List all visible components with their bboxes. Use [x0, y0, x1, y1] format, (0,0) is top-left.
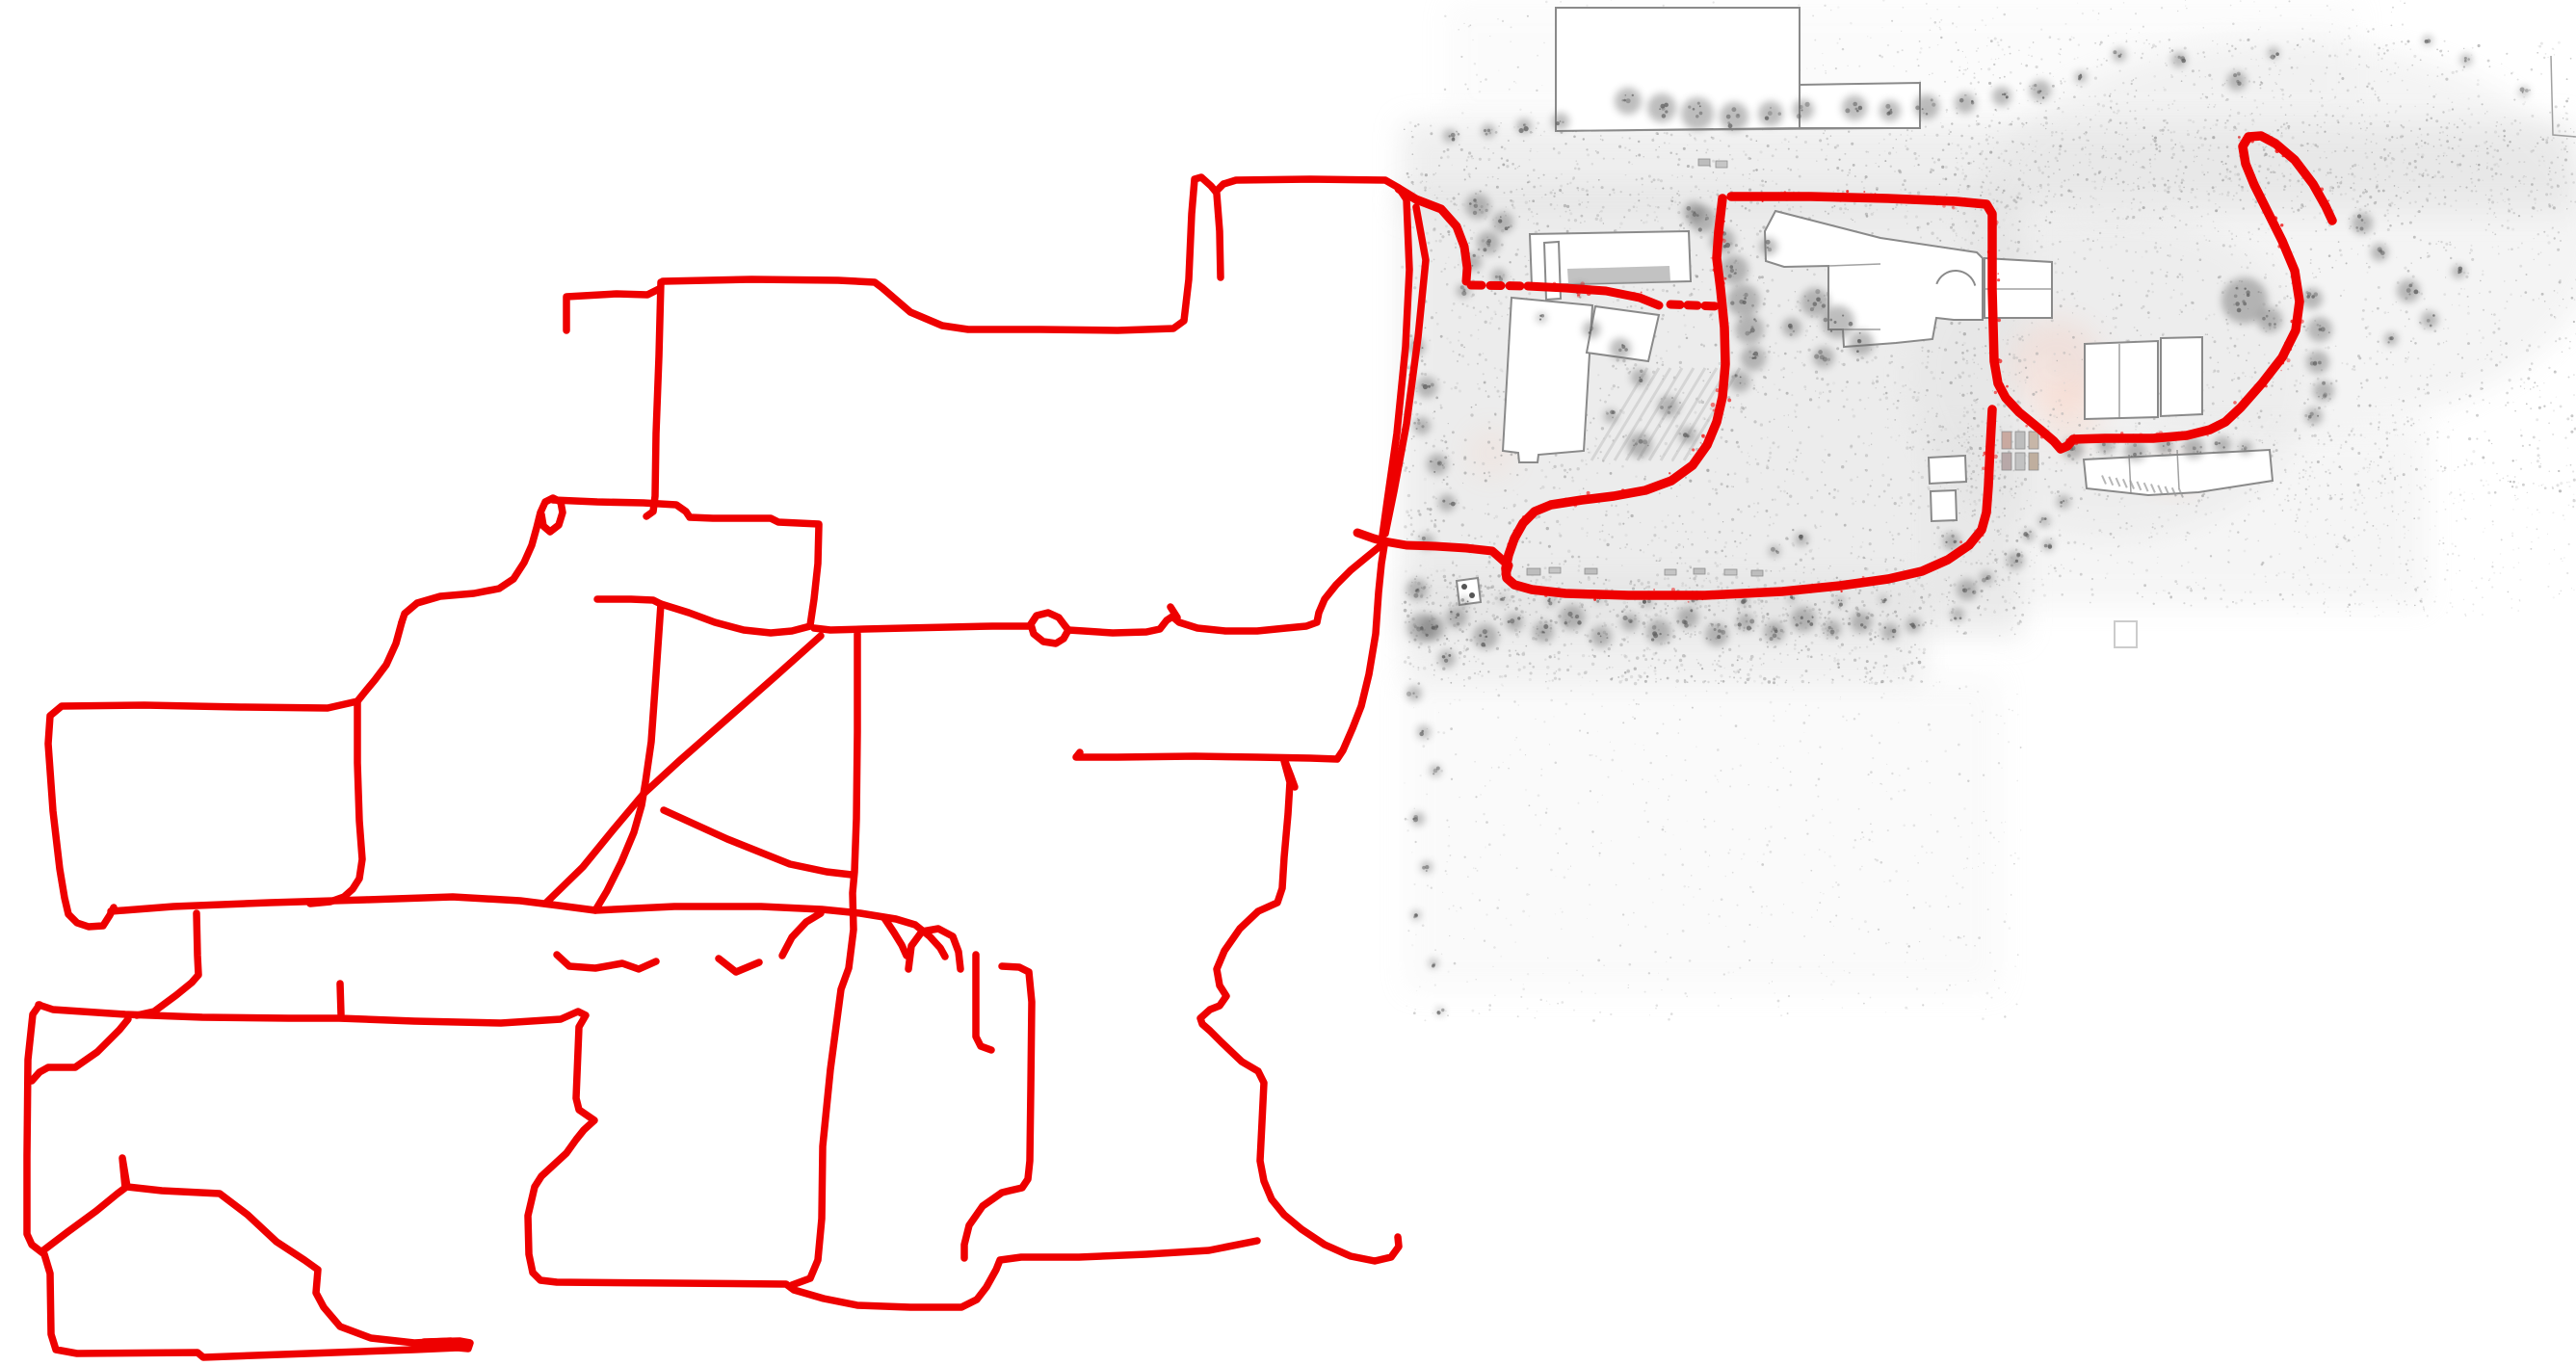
trajectory-stroke-scallop-1 [557, 955, 656, 969]
building-outline-lower-left-hall [1503, 298, 1592, 462]
tree-blob [1683, 201, 1704, 223]
tree-blob [1992, 87, 2011, 106]
trajectory-stroke-stub-top-left [566, 289, 659, 330]
tree-blob [1482, 124, 1495, 138]
kiosk-dot [1461, 584, 1467, 590]
tree-blob [1793, 99, 1814, 120]
trajectory-stroke-mid-vert-373 [310, 701, 362, 904]
tree-blob [1705, 623, 1728, 646]
tree-blob [1417, 725, 1431, 739]
tree-blob [2423, 36, 2432, 45]
parked-car [1527, 568, 1540, 575]
tree-blob [1583, 321, 1600, 338]
tree-blob [1560, 605, 1585, 630]
trajectory-stroke-west-horiz-622 [597, 599, 661, 604]
tree-blob [1421, 861, 1433, 873]
parked-car [1665, 569, 1676, 575]
parked-car [2029, 432, 2038, 449]
tree-blob [1849, 330, 1874, 355]
tree-blob [2519, 87, 2529, 96]
tree-blob [1791, 607, 1816, 632]
parked-car [1549, 567, 1561, 573]
tree-blob [1681, 97, 1714, 130]
trajectory-stroke-bottom-horiz-940 [111, 897, 945, 957]
tree-blob [1955, 92, 1976, 114]
trajectory-stroke-vert-686 [646, 282, 661, 516]
tree-blob [2306, 351, 2329, 374]
trajectory-stroke-low-mid-chain [39, 1005, 1257, 1307]
trajectory-stroke-vert-1013 [976, 955, 991, 1050]
slam-map-view [0, 0, 2576, 1366]
tree-blob [1822, 305, 1854, 338]
building-outline-faint-foundation [2115, 621, 2137, 647]
tree-blob [1914, 94, 1939, 119]
tree-blob [1788, 595, 1796, 603]
ground-wash [1405, 674, 2002, 992]
trajectory-stroke-arc-sw [782, 913, 821, 956]
tree-blob [1459, 597, 1469, 607]
tree-blob [1590, 626, 1612, 647]
tree-blob [1406, 579, 1428, 600]
trajectory-stroke-wedge [32, 1019, 128, 1081]
tree-blob [2030, 80, 2051, 101]
trajectory-stroke-notch-stub [1217, 194, 1221, 277]
tree-blob [1735, 315, 1764, 344]
trajectory-stroke-spur-353 [340, 984, 341, 1014]
tree-blob [1813, 347, 1834, 368]
slam-map-canvas [0, 0, 2576, 1366]
tree-blob [2305, 407, 2323, 425]
tree-blob [1430, 765, 1441, 776]
tree-blob [1413, 417, 1431, 434]
tree-blob [1438, 650, 1456, 668]
tree-blob [1427, 454, 1448, 475]
tree-blob [1465, 194, 1490, 219]
tree-blob [1446, 607, 1467, 628]
trajectory-stroke-fork-diagonal-2 [595, 604, 661, 910]
tree-blob [1615, 88, 1642, 115]
trajectory-stroke-junction-down-left [1068, 544, 1382, 633]
tree-blob [1881, 623, 1899, 641]
tree-blob [1741, 346, 1766, 371]
tree-blob [2007, 552, 2024, 569]
tree-blob [2239, 441, 2252, 455]
tree-blob [1516, 118, 1532, 134]
building-outline-upper-east-b [2161, 337, 2202, 416]
trajectory-stroke-s-curve-curl [402, 498, 563, 622]
tree-blob [1406, 686, 1422, 701]
building-wall-band [1567, 266, 1670, 284]
tree-blob [1411, 910, 1421, 920]
tree-blob [1546, 596, 1556, 606]
tree-blob [1429, 959, 1438, 968]
tree-blob [1627, 433, 1652, 458]
tree-blob [2214, 436, 2231, 454]
tree-blob [1679, 427, 1696, 444]
parked-car [2002, 453, 2011, 470]
trajectory-stroke-vert-204 [137, 913, 198, 1015]
tree-blob [1727, 284, 1760, 317]
tree-blob [1646, 619, 1671, 644]
tree-blob [1769, 545, 1780, 557]
tree-blob [1407, 614, 1436, 643]
tree-blob [2371, 244, 2388, 261]
tree-blob [2352, 213, 2373, 234]
tree-blob [1720, 102, 1748, 131]
tree-blob [1677, 607, 1698, 628]
trajectory-stroke-inner-boot [43, 1158, 451, 1343]
trajectory-stroke-mid-left-loop [48, 622, 402, 927]
tree-blob [1411, 812, 1425, 826]
tree-blob [1980, 571, 1993, 585]
tree-blob [2113, 48, 2126, 62]
trajectory-stroke-fork-right [661, 604, 810, 633]
trajectory-stroke-scallop-2 [719, 959, 759, 972]
parked-car [2015, 432, 2025, 449]
building-outline-west-lot-a [1929, 456, 1966, 484]
tree-blob [2227, 71, 2247, 91]
tree-blob [2171, 52, 2187, 67]
trajectory-stroke-dash-b [1670, 304, 1718, 306]
trajectory-stroke-east-wavy-vert [1200, 761, 1399, 1261]
tree-blob [1537, 313, 1546, 323]
tree-blob [2257, 307, 2282, 332]
tree-blob [1506, 614, 1523, 631]
trajectory-stroke-horiz-520 [553, 500, 819, 524]
parked-car [2015, 453, 2025, 470]
tree-blob [1477, 231, 1500, 254]
tree-blob [1436, 1008, 1445, 1015]
tree-blob [1795, 533, 1808, 546]
tree-blob [2038, 515, 2050, 527]
tree-blob [2075, 71, 2087, 83]
tree-blob [1658, 396, 1679, 417]
tree-blob [1443, 129, 1457, 143]
trajectory-stroke-mid-horiz-650 [814, 626, 1031, 630]
tree-blob [1533, 621, 1554, 643]
tree-blob [1824, 620, 1841, 638]
tree-blob [1416, 377, 1437, 398]
tree-blob [1782, 318, 1801, 337]
tree-blob [1604, 409, 1617, 423]
parked-car [1716, 161, 1727, 168]
tree-blob [2313, 381, 2334, 402]
tree-blob [2057, 495, 2070, 509]
tree-blob [1879, 100, 1901, 121]
tree-blob [1957, 579, 1978, 600]
kiosk-dot [1469, 592, 1475, 598]
trajectory-stroke-dash-a [1471, 285, 1528, 286]
tree-blob [1758, 101, 1783, 126]
tree-blob [1492, 212, 1513, 233]
tree-blob [2397, 279, 2420, 302]
tree-blob [1499, 595, 1507, 603]
tree-blob [2023, 530, 2035, 541]
tree-blob [2301, 288, 2323, 309]
tree-blob [2421, 311, 2438, 328]
trajectory-stroke-top-main [663, 177, 1406, 330]
trajectory-stroke-diagonal-3 [664, 810, 852, 875]
tree-blob [1621, 614, 1639, 631]
tree-blob [2307, 317, 2332, 342]
tree-blob [2042, 539, 2054, 551]
tree-blob [1647, 93, 1676, 122]
building-outline-west-lot-b [1931, 490, 1957, 521]
tree-blob [1760, 238, 1777, 255]
parked-car [1698, 159, 1710, 166]
tree-blob [1729, 371, 1750, 392]
trajectory-stroke-horiz-785 [1076, 545, 1384, 759]
trajectory-stroke-arc-n [908, 929, 960, 969]
building-outline-upper-east-a [2085, 341, 2158, 419]
parked-car [1694, 568, 1705, 574]
tree-blob [1473, 624, 1498, 649]
tree-blob [1610, 338, 1631, 359]
parked-car [2002, 432, 2011, 449]
parked-car [1724, 569, 1737, 575]
trajectory-stroke-knot-loop [1031, 613, 1068, 644]
tree-blob [1906, 617, 1921, 633]
parked-car [2029, 453, 2038, 470]
tree-blob [1552, 113, 1569, 130]
trajectory-stroke-vert-888-long [792, 634, 857, 1285]
tree-blob [1764, 621, 1785, 643]
parked-car [1585, 568, 1597, 574]
tree-blob [1438, 494, 1456, 512]
tree-blob [2125, 440, 2146, 461]
tree-blob [2183, 437, 2204, 459]
parked-car [1751, 570, 1763, 576]
tree-blob [1631, 369, 1648, 386]
tree-blob [2460, 54, 2472, 66]
trajectory-stroke-spur-1333 [1284, 759, 1295, 787]
trajectory-stroke-vert-847 [810, 525, 819, 625]
tree-blob [2384, 332, 2398, 346]
tree-blob [2452, 265, 2465, 278]
tree-blob [1851, 612, 1872, 633]
tree-blob [1951, 608, 1964, 621]
tree-blob [1842, 95, 1867, 120]
